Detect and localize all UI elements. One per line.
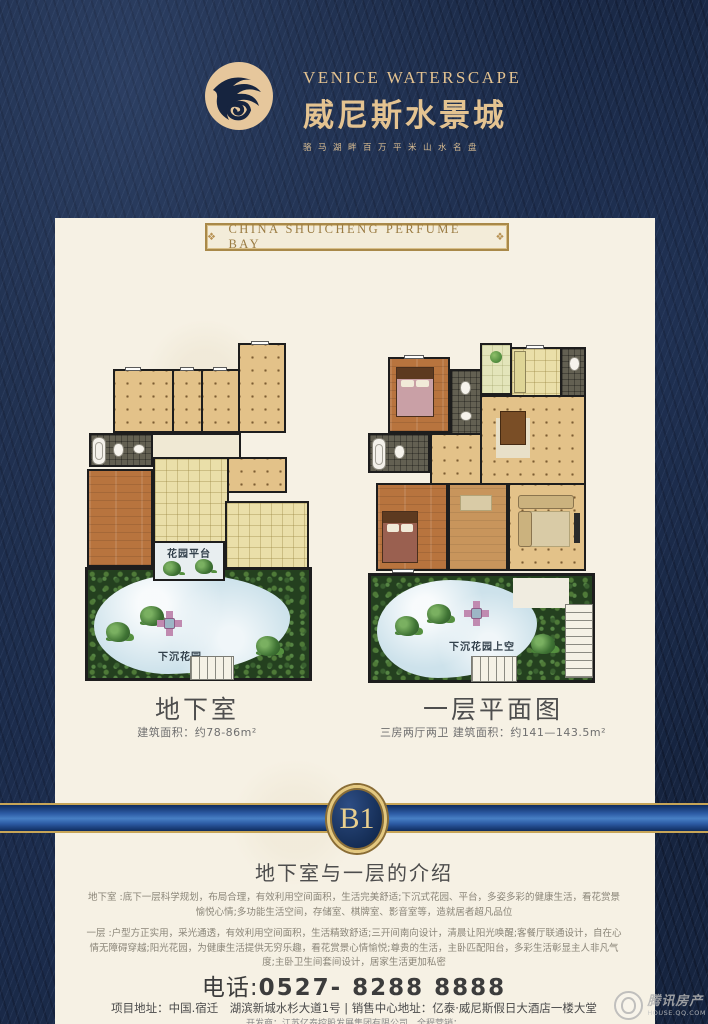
bathtub (372, 438, 386, 470)
dining-room (480, 395, 586, 485)
bedroom (388, 357, 450, 433)
intro-paragraph-first-floor: 一层 :户型方正实用，采光通透，有效利用空间面积，生活精致舒适;三开间南向设计，… (84, 927, 624, 971)
phone-line: 电话:0527- 8288 8888 (154, 968, 554, 1002)
tree-icon (106, 622, 130, 642)
qq-house-logo-icon (614, 991, 643, 1020)
logo-title-en: VENICE WATERSCAPE (303, 68, 563, 88)
basement-room-wood (87, 469, 153, 567)
phone-number: 0527- 8288 8888 (259, 975, 507, 1001)
dining-table (500, 411, 526, 445)
desk (460, 495, 492, 511)
pillow (387, 524, 399, 532)
banner-ornament-icon: ❖ (496, 232, 507, 243)
window-mark (180, 367, 194, 371)
basement-room (238, 343, 286, 433)
headboard (397, 368, 433, 379)
entry (480, 343, 512, 395)
banner-ornament-icon: ❖ (207, 232, 218, 243)
kitchen (510, 347, 562, 397)
basement-room (172, 369, 204, 433)
tv (574, 513, 580, 543)
pillow (416, 380, 428, 388)
basement-room (227, 457, 287, 493)
bush-icon (163, 561, 181, 576)
tree-icon (531, 634, 555, 654)
window-mark (404, 355, 424, 359)
sunken-garden-void: 下沉花园上空 (368, 573, 595, 683)
basement-room (201, 369, 241, 433)
garden-platform: 花园平台 (153, 541, 225, 581)
bedroom (376, 483, 448, 571)
toilet (569, 357, 580, 371)
tree-icon (256, 636, 280, 656)
bathroom (450, 369, 482, 437)
sink (460, 411, 472, 421)
bed (382, 511, 418, 563)
intro-title: 地下室与一层的介绍 (154, 857, 554, 886)
basement-room-tiled (153, 457, 229, 543)
bathtub (92, 437, 106, 465)
first-floor-title: 一层平面图 (343, 690, 643, 726)
basement-title: 地下室 (47, 690, 347, 726)
living-room (508, 483, 586, 571)
banner-plaque: ❖ CHINA SHUICHENG PERFUME BAY ❖ (205, 223, 509, 251)
pillow (401, 524, 413, 532)
basement-room (113, 369, 175, 433)
first-floor-plan: 下沉花园上空 (368, 333, 616, 685)
first-floor-subtitle: 三房两厅两卫 建筑面积：约141—143.5m² (323, 724, 663, 740)
kitchen-counter (514, 351, 526, 393)
tree-icon (140, 606, 164, 626)
toilet (394, 445, 405, 459)
stairs (471, 656, 517, 682)
window-mark (125, 367, 141, 371)
basement-subtitle: 建筑面积：约78-86m² (27, 724, 367, 740)
study-room (448, 483, 508, 571)
window-mark (213, 367, 227, 371)
bathroom (368, 433, 430, 473)
exterior-stairs (565, 604, 593, 678)
garden-platform-label: 花园平台 (167, 545, 211, 560)
logo-text-block: VENICE WATERSCAPE 威尼斯水景城 骆马湖畔百万平米山水名盘 (303, 68, 563, 153)
garden-table-icon (164, 618, 175, 629)
basement-floor-plan: 下沉花园 花园平台 (85, 333, 333, 685)
headboard (383, 512, 417, 523)
watermark-text: 腾讯房产 HOUSE.QQ.COM (647, 995, 706, 1017)
corridor (430, 433, 482, 485)
basement-hall (151, 433, 241, 459)
watermark-domain: HOUSE.QQ.COM (647, 1010, 706, 1017)
garden-table-icon (471, 608, 482, 619)
sunken-garden: 下沉花园 (85, 567, 312, 681)
bathroom (560, 347, 586, 397)
venice-waterscape-logo-icon (203, 60, 279, 136)
watermark-name: 腾讯房产 (647, 995, 706, 1008)
intro-paragraph-basement: 地下室 :底下一层科学规划，布局合理，有效利用空间面积，生活完美舒适;下沉式花园… (84, 891, 624, 920)
phone-label: 电话: (202, 975, 259, 1001)
address-line: 项目地址：中国.宿迁 湖滨新城水杉大道1号 | 销售中心地址：亿泰·威尼斯假日大… (64, 1000, 644, 1016)
logo-tagline: 骆马湖畔百万平米山水名盘 (303, 141, 563, 153)
sofa (518, 495, 574, 509)
logo-title-cn: 威尼斯水景城 (303, 90, 563, 135)
pillow (401, 380, 413, 388)
watermark: 腾讯房产 HOUSE.QQ.COM (614, 991, 706, 1020)
stairs (190, 656, 234, 680)
window-mark (526, 345, 544, 349)
unit-type-badge: B1 (327, 785, 387, 853)
basement-bathroom (89, 433, 153, 467)
window-mark (251, 341, 269, 345)
sink (133, 444, 145, 454)
tree-icon (427, 604, 451, 624)
toilet (460, 381, 471, 395)
sunken-garden-void-label: 下沉花园上空 (449, 638, 515, 653)
sofa (518, 511, 532, 547)
open-terrace (513, 578, 569, 608)
bush-icon (195, 559, 213, 574)
banner-text: CHINA SHUICHENG PERFUME BAY (228, 222, 485, 252)
developer-line: 开发商：江苏亿泰控股发展集团有限公司 全程营销： (64, 1016, 644, 1024)
plant-icon (490, 351, 502, 363)
tree-icon (395, 616, 419, 636)
poster-page: VENICE WATERSCAPE 威尼斯水景城 骆马湖畔百万平米山水名盘 ❖ … (0, 0, 708, 1024)
toilet (113, 443, 124, 457)
bed (396, 367, 434, 417)
